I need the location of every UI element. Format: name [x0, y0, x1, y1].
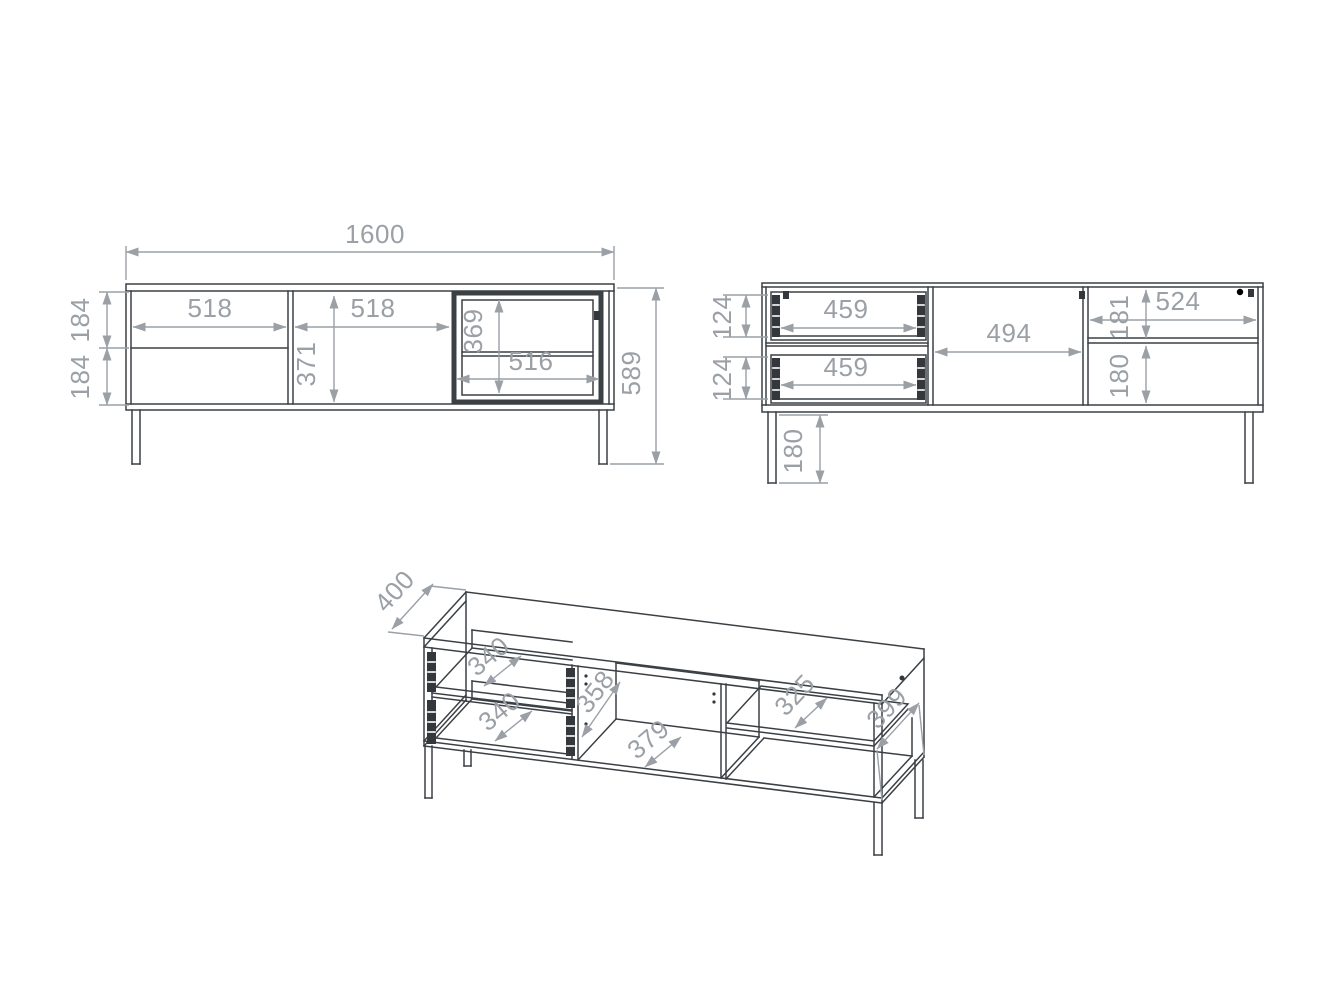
fitting-mark — [1079, 291, 1085, 299]
dim-right-above-shelf: 181 — [1104, 295, 1134, 340]
interior-view-legs — [768, 412, 1253, 483]
dim-front-middle-height: 371 — [291, 342, 321, 387]
dim-front-middle-width: 518 — [351, 293, 396, 323]
dim-front-left-width: 518 — [188, 293, 233, 323]
front-view-legs — [132, 410, 607, 464]
front-view-dimensions: 1600 518 518 371 369 516 184 184 — [65, 219, 664, 464]
dim-front-glass-width: 516 — [509, 346, 554, 376]
dim-drawer-top-width: 459 — [824, 294, 869, 324]
dim-drawer-bottom-side-height: 124 — [707, 357, 737, 402]
front-view: 1600 518 518 371 369 516 184 184 — [65, 219, 664, 464]
dim-leg-height: 180 — [778, 429, 808, 474]
interior-view-dimensions: 459 459 124 124 494 524 181 180 — [707, 286, 1256, 483]
dim-front-drawer-bottom-height: 184 — [65, 355, 95, 400]
side-fitting-dot — [900, 676, 905, 681]
furniture-dimension-drawing: 1600 518 518 371 369 516 184 184 — [0, 0, 1341, 1005]
dim-drawer-top-side-height: 124 — [707, 295, 737, 340]
fitting-mark — [783, 291, 789, 299]
dim-front-total-width: 1600 — [345, 219, 405, 249]
cam-lock-mark — [1237, 289, 1243, 295]
fitting-mark — [1248, 289, 1254, 297]
dim-front-glass-height: 369 — [458, 309, 488, 354]
dim-right-section-width: 524 — [1156, 286, 1201, 316]
dim-iso-drawer-top-depth: 340 — [461, 630, 515, 682]
dim-front-total-height: 589 — [616, 351, 646, 396]
glass-door-handle — [594, 311, 600, 320]
dim-front-drawer-top-height: 184 — [65, 298, 95, 343]
dim-drawer-bottom-width: 459 — [824, 352, 869, 382]
interior-view: 459 459 124 124 494 524 181 180 — [707, 283, 1263, 483]
dim-iso-depth: 400 — [368, 564, 420, 617]
dim-iso-side-depth: 399 — [860, 681, 913, 734]
perspective-view-dimensions: 400 340 340 358 379 325 399 — [368, 564, 924, 800]
dim-iso-middle-height: 358 — [569, 665, 620, 719]
perspective-view-legs — [425, 746, 923, 855]
dim-right-below-shelf: 180 — [1104, 354, 1134, 399]
perspective-view: 400 340 340 358 379 325 399 — [368, 564, 924, 855]
dim-middle-opening-width: 494 — [987, 318, 1032, 348]
technical-drawing-page: 1600 518 518 371 369 516 184 184 — [0, 0, 1341, 1005]
dim-iso-shelf-depth: 325 — [768, 668, 821, 721]
